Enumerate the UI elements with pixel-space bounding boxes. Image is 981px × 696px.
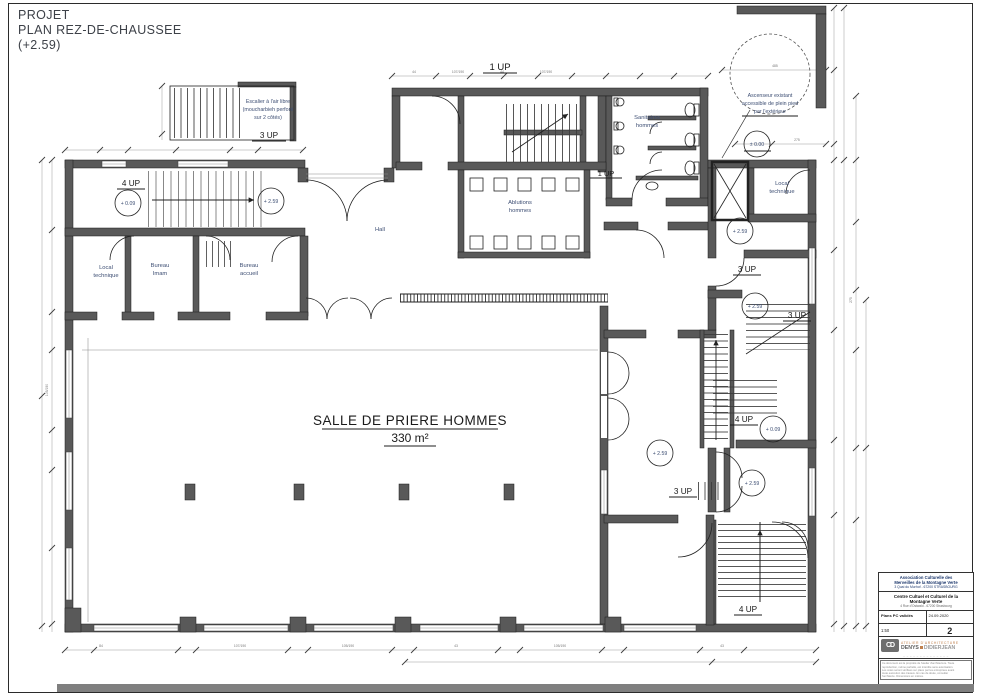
room-bureau-accueil: Bureau xyxy=(240,263,259,269)
room-sanitaires: Sanitaires xyxy=(634,115,660,121)
architect-logo: CD xyxy=(881,639,899,652)
stair-label-4up: 4 UP xyxy=(735,415,754,424)
title-block: Association Culturelle des Merveilles de… xyxy=(878,572,974,691)
sheet-number: 2 xyxy=(926,624,974,636)
guide-lines xyxy=(82,338,598,622)
stair-label-3up: 3 UP xyxy=(260,131,279,140)
svg-text:technique: technique xyxy=(769,189,794,195)
dim-value: 43 xyxy=(454,644,458,648)
drawing-date: 24.09.2020 xyxy=(926,611,974,623)
stair-label-3up: 3 UP xyxy=(674,487,693,496)
note-escalier: Escalier à l'air libre xyxy=(246,99,290,105)
dim-value: 275 xyxy=(794,138,800,142)
room-hall: Hall xyxy=(375,227,385,233)
firm-name-2: DIDIERJEAN xyxy=(924,645,955,651)
stair-label-3up: 3 UP xyxy=(788,311,807,320)
dim-value: 107/190 xyxy=(540,70,552,74)
legal-notes: Ce document est la propriété de l'atelie… xyxy=(880,660,972,680)
room-ablutions: Ablutions xyxy=(508,200,532,206)
existing-structure xyxy=(722,6,826,158)
dim-value: 105/190 xyxy=(554,644,566,648)
svg-text:Imam: Imam xyxy=(153,271,168,277)
stair-label-3up: 3 UP xyxy=(738,265,757,274)
level-value: + 0.09 xyxy=(766,427,781,433)
level-value: + 2.59 xyxy=(653,451,668,457)
drawing-sheet: PROJET PLAN REZ-DE-CHAUSSEE (+2.59) xyxy=(0,0,981,696)
svg-text:sur 2 côtés): sur 2 côtés) xyxy=(254,115,282,121)
room-local-technique: Local xyxy=(99,265,113,271)
level-value: + 2.59 xyxy=(264,199,279,205)
svg-text:accessible de plein pied: accessible de plein pied xyxy=(742,101,798,107)
dim-value: 43 xyxy=(720,644,724,648)
room-prayer-hall-area: 330 m² xyxy=(391,431,428,445)
walls xyxy=(65,82,816,632)
floor-plan: 44 107/190 44 107/190 485 275 84 107/190… xyxy=(0,0,981,696)
firm-logo-square xyxy=(920,646,923,649)
sheet-shadow xyxy=(57,684,974,692)
stair-label-4up: 4 UP xyxy=(739,605,758,614)
dim-value: 44 xyxy=(412,70,416,74)
firm-name-1: DENYS xyxy=(901,645,919,651)
svg-text:hommes: hommes xyxy=(509,208,531,214)
room-local-technique-right: Local xyxy=(775,181,789,187)
room-prayer-hall-title: SALLE DE PRIERE HOMMES xyxy=(313,413,507,428)
level-value: + 2.59 xyxy=(748,304,763,310)
stair-label-1up: 1 UP xyxy=(598,169,615,178)
svg-text:par l'extérieur: par l'extérieur xyxy=(754,109,786,115)
svg-text:hommes: hommes xyxy=(636,123,658,129)
dim-value: 107/190 xyxy=(452,70,464,74)
dim-value: 275 xyxy=(849,297,853,303)
columns xyxy=(185,484,514,500)
level-value: ± 0.00 xyxy=(750,142,764,148)
client-address: 3 Quai du Murhof - 67200 STRASBOURG xyxy=(880,585,972,589)
project-address: 4 Rue d'Ostwald - 67200 Strasbourg xyxy=(880,604,972,608)
room-bureau-imam: Bureau xyxy=(151,263,170,269)
dim-value: 84 xyxy=(99,644,103,648)
note-ascenseur: Ascenseur existant xyxy=(748,93,793,99)
level-value: + 0.09 xyxy=(121,201,136,207)
firm-contact: – – – – – – – – – – – – – – xyxy=(879,654,973,658)
elevator-shaft xyxy=(712,162,748,220)
dim-value: 105/190 xyxy=(45,384,49,396)
level-value: + 2.59 xyxy=(745,481,760,487)
stair-label-4up: 4 UP xyxy=(122,179,141,188)
drawing-scale: 1:50 xyxy=(879,624,926,636)
dim-value: 485 xyxy=(772,64,778,68)
level-value: + 2.59 xyxy=(733,229,748,235)
dim-value: 105/190 xyxy=(342,644,354,648)
screen-wall xyxy=(400,294,608,302)
stair-label-1up: 1 UP xyxy=(489,62,510,73)
dim-value: 107/190 xyxy=(234,644,246,648)
phase-label: Plans PC validés xyxy=(879,611,926,623)
svg-text:technique: technique xyxy=(93,273,118,279)
svg-text:(moucharbieh perforé: (moucharbieh perforé xyxy=(243,107,294,113)
svg-text:accueil: accueil xyxy=(240,271,258,277)
